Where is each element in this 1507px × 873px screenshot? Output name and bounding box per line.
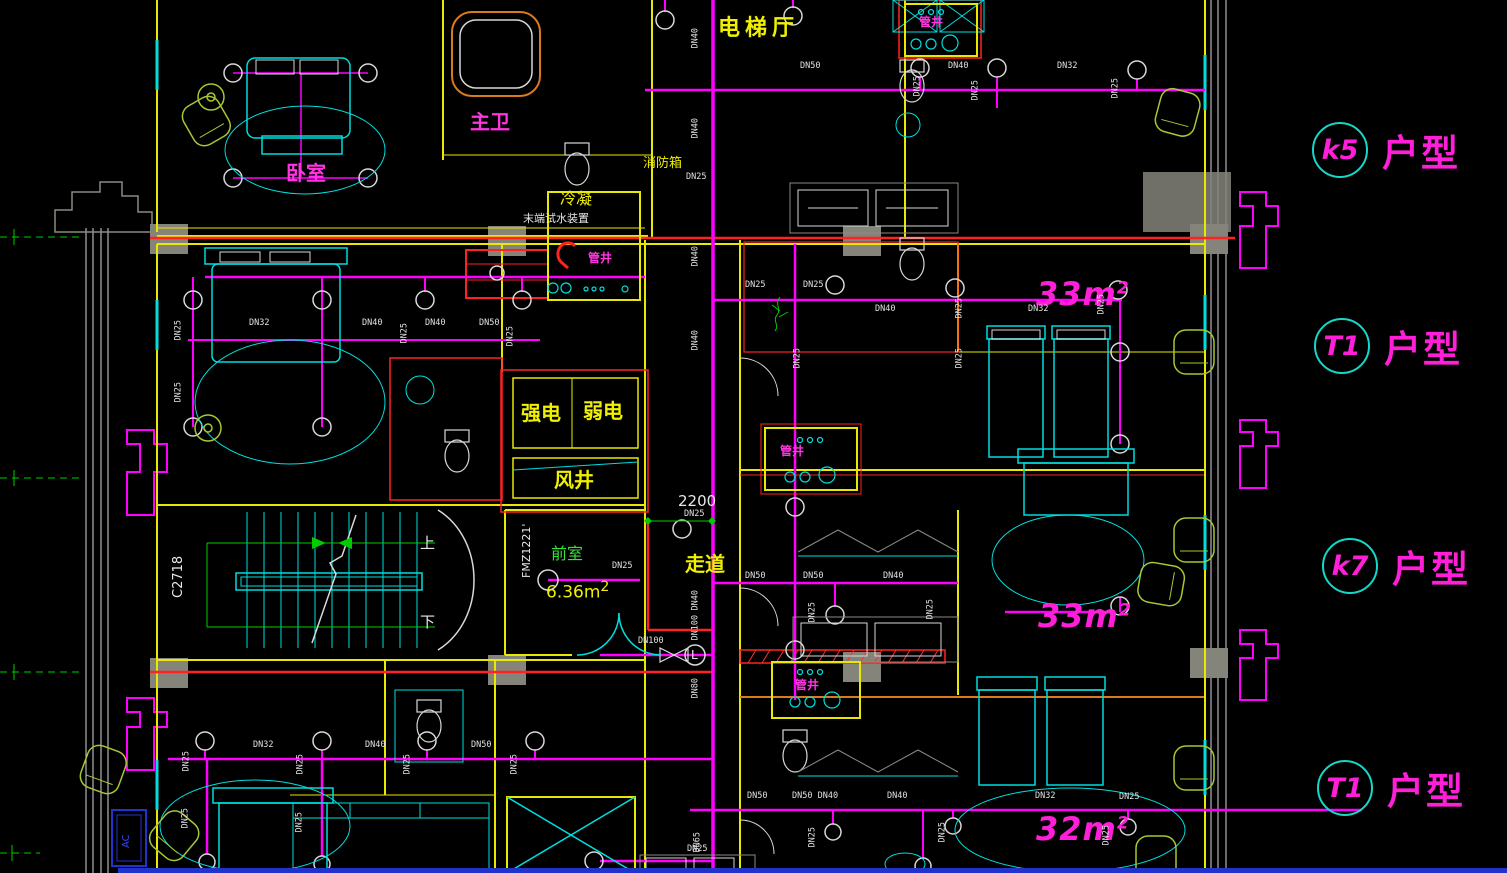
pipe-diameter-label: DN25 (1103, 825, 1112, 845)
room-label-front-room: 前室 (551, 546, 583, 562)
axis-and-edge-lines (0, 0, 1226, 873)
unit-tag-k5: k5 户型 (1312, 122, 1460, 178)
room-label-weak-electric: 弱电 (583, 401, 623, 421)
pipe-diameter-label: DN25 (794, 348, 803, 368)
room-label-fire-hydrant-box: 消防箱 (643, 157, 682, 170)
stair-down-label: 下 (420, 615, 435, 630)
room-label-strong-electric: 强电 (521, 403, 561, 423)
pipe-diameter-label: DN40 (887, 792, 907, 801)
pipe-diameter-label: DN40 (692, 330, 701, 350)
pipe-diameter-label: DN100 (638, 637, 664, 646)
pipe-diameter-label: DN25 (956, 298, 965, 318)
pipe-diameter-label: DN25 (296, 812, 305, 832)
label-front-room-area: 6.36m2 (546, 580, 609, 602)
unit-tag-label: 户型 (1392, 539, 1470, 593)
sprinkler-heads (184, 7, 1146, 873)
room-label-pipe-shaft-1: 管井 (919, 16, 943, 28)
pipe-diameter-label: DN25 (182, 808, 191, 828)
pipe-diameter-label: DN40 (362, 319, 382, 328)
unit-tag-t1-lower: T1 户型 (1317, 760, 1465, 816)
pipe-diameter-label: DN25 (914, 76, 923, 96)
pipe-diameter-label: DN25 (745, 281, 765, 290)
pipe-diameter-label: DN40 (875, 305, 895, 314)
unit-tag-label: 户型 (1384, 319, 1462, 373)
window-code-label: C2718 (172, 556, 185, 598)
unit-code-badge: k7 (1322, 538, 1378, 594)
pipe-diameter-label: DN100 (692, 615, 701, 641)
door-code-label: FMZ1221' (521, 524, 532, 578)
pipe-diameter-label: DN25 (297, 754, 306, 774)
pipe-diameter-label: DN50 (479, 319, 499, 328)
pipe-diameter-label: DN25 (511, 754, 520, 774)
pipe-diameter-label: DN40 (948, 62, 968, 71)
pipe-diameter-label: DN25 (686, 173, 706, 182)
pipe-diameter-label: DN25 (175, 320, 184, 340)
pipe-diameter-label: DN50 DN40 (792, 792, 838, 801)
area-sup: 2 (1117, 813, 1130, 833)
pipe-diameter-label: DN50 (800, 62, 820, 71)
front-room-area-sup: 2 (600, 579, 609, 595)
ac-unit-label: AC (122, 834, 132, 848)
room-label-condensate: 冷凝 (560, 191, 592, 207)
pipe-diameter-label: DN32 (1057, 62, 1077, 71)
room-label-bedroom: 卧室 (286, 163, 326, 183)
pipe-diameter-label: DN50 (745, 572, 765, 581)
cad-floorplan-canvas[interactable]: 电梯厅 主卫 卧室 消防箱 冷凝 末端试水装置 管井 管井 管井 管井 强电 弱… (0, 0, 1507, 873)
pipe-diameter-label: DN80 (692, 678, 701, 698)
area-label-33m2-upper: 33m2 (1036, 278, 1130, 310)
pipe-diameter-label: DN32 (249, 319, 269, 328)
pipe-diameter-label: DN25 (809, 827, 818, 847)
unit-tag-label: 户型 (1387, 761, 1465, 815)
pipe-diameter-label: DN25 (175, 382, 184, 402)
stair-up-label: 上 (420, 536, 435, 551)
pipe-diameter-label: DN25 (956, 348, 965, 368)
pipe-diameter-label: DN32 (1028, 305, 1048, 314)
room-label-pipe-shaft-2: 管井 (588, 252, 612, 264)
area-label-32m2: 32m2 (1036, 813, 1130, 845)
room-label-pipe-shaft-4: 管井 (795, 679, 819, 691)
pipe-diameter-label: DN25 (809, 602, 818, 622)
unit-code-badge: k5 (1312, 122, 1368, 178)
pipe-diameter-label: DN50 (747, 792, 767, 801)
pipe-diameter-label: DN25 (803, 281, 823, 290)
pipe-diameter-label: DN40 (692, 118, 701, 138)
room-label-master-bath: 主卫 (470, 112, 510, 132)
section-break-symbols (55, 182, 1278, 770)
pipe-diameter-label: DN25 (507, 326, 516, 346)
pipe-diameter-label: DN25 (612, 562, 632, 571)
pipe-diameter-label: DN25 (1098, 294, 1107, 314)
pipe-diameter-label: DN40 (883, 572, 903, 581)
pipe-diameter-label: DN50 (471, 741, 491, 750)
dimension-line (644, 517, 716, 525)
room-label-corridor: 走道 (685, 554, 725, 574)
pipe-diameter-label: DN40 (692, 590, 701, 610)
pipe-diameter-label: DN25 (972, 80, 981, 100)
pipe-diameter-label: DN25 (404, 754, 413, 774)
unit-code-badge: T1 (1314, 318, 1370, 374)
pipe-diameter-label: DN25 (687, 845, 707, 854)
drain-tag-label: L (691, 649, 698, 661)
room-label-pipe-shaft-3: 管井 (780, 445, 804, 457)
pipe-diameter-label: DN25 (1119, 793, 1139, 802)
pipe-diameter-label: DN25 (401, 323, 410, 343)
unit-code-badge: T1 (1317, 760, 1373, 816)
unit-tag-k7: k7 户型 (1322, 538, 1470, 594)
unit-tag-t1-upper: T1 户型 (1314, 318, 1462, 374)
pipe-diameter-label: DN40 (692, 28, 701, 48)
pipe-diameter-label: DN25 (1112, 78, 1121, 98)
area-sup: 2 (1117, 278, 1130, 298)
room-label-elevator-hall: 电梯厅 (718, 18, 799, 40)
label-end-test-water-device: 末端试水装置 (523, 213, 589, 224)
pipe-diameter-label: DN40 (692, 246, 701, 266)
room-label-air-shaft: 风井 (554, 470, 594, 490)
pipe-diameter-label: DN40 (365, 741, 385, 750)
pipe-diameter-label: DN32 (253, 741, 273, 750)
unit-tag-label: 户型 (1382, 123, 1460, 177)
dimension-label: 2200 (678, 494, 716, 509)
walls (157, 0, 1205, 873)
pipe-diameter-label: DN25 (183, 751, 192, 771)
pipe-diameter-label: DN32 (1035, 792, 1055, 801)
pipe-diameter-label: DN40 (425, 319, 445, 328)
floorplan-linework (0, 0, 1507, 873)
pipe-diameter-label: DN50 (803, 572, 823, 581)
pipe-diameter-label: DN25 (939, 822, 948, 842)
pipe-diameter-label: DN25 (684, 510, 704, 519)
area-label-33m2-lower: 33m2 (1038, 600, 1132, 632)
pipe-diameter-label: DN25 (927, 599, 936, 619)
area-sup: 2 (1119, 600, 1132, 620)
